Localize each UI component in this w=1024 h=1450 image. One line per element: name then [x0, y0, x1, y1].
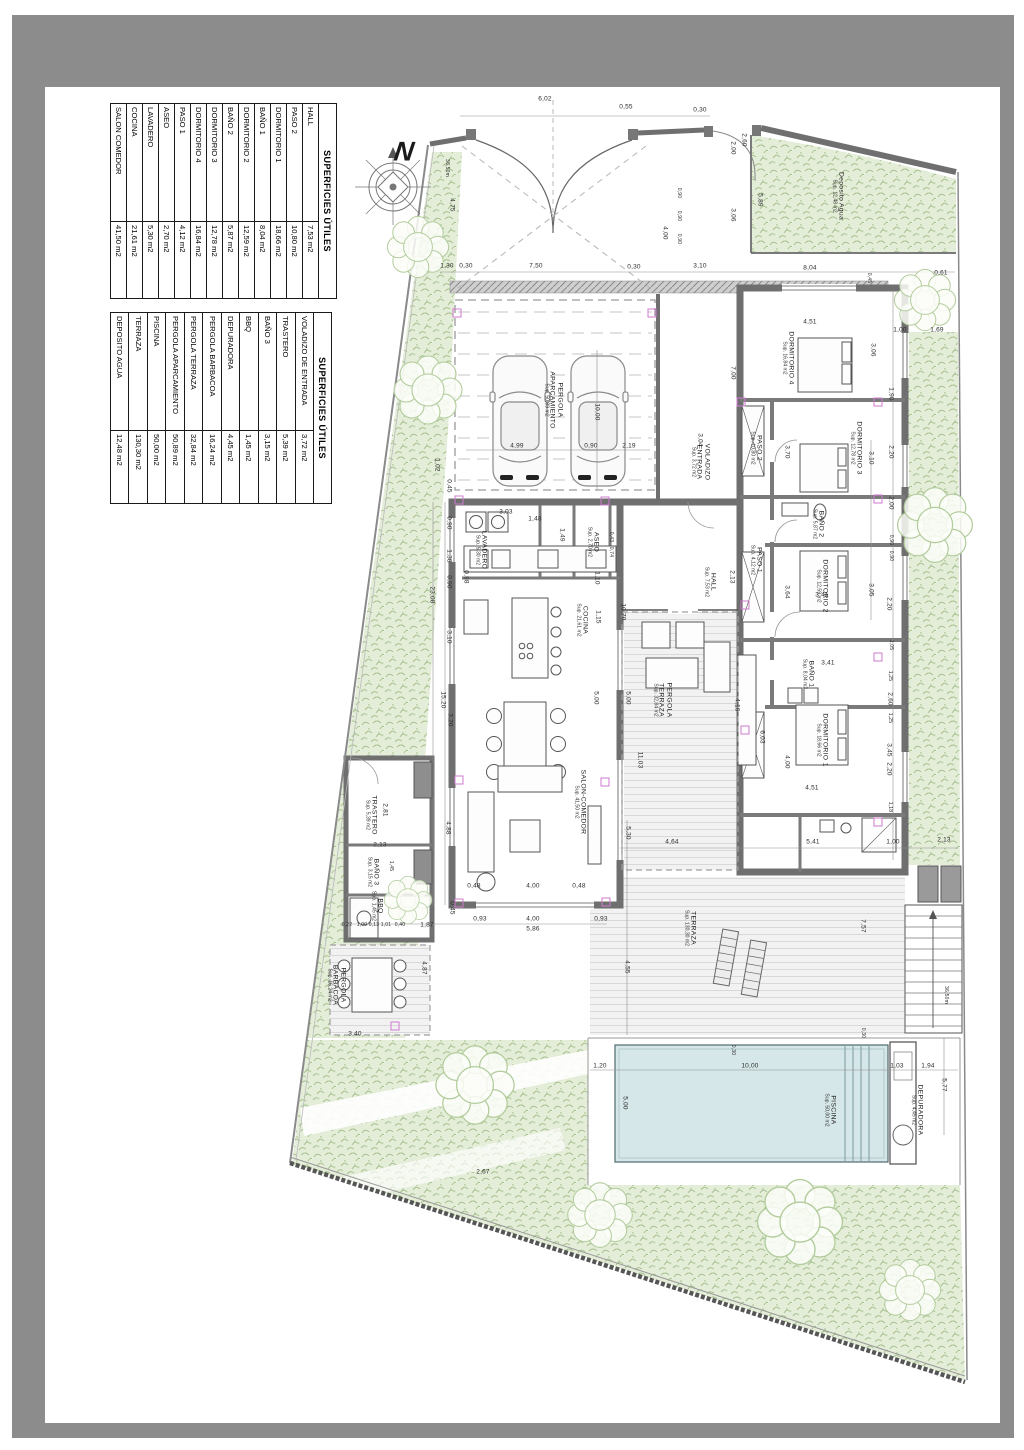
table-row: DEPURADORA4,45 m2 — [221, 313, 239, 503]
entrance-gates — [458, 125, 761, 288]
room-name-cell: LAVADERO — [143, 104, 158, 222]
room-area-cell: 4,45 m2 — [222, 431, 239, 503]
table-row: PASO 210,80 m2 — [286, 104, 302, 298]
room-name-cell: BBQ — [240, 313, 257, 431]
room-name-cell: DORMITORIO 1 — [271, 104, 286, 222]
exterior-stairs — [905, 905, 962, 1033]
room-name-cell: DORMITORIO 4 — [191, 104, 206, 222]
table-row: BBQ1,45 m2 — [239, 313, 257, 503]
surface-table-exterior: SUPERFICIES ÚTILES VOLADIZO DE ENTRADA3,… — [110, 312, 332, 504]
table-body: HALL7,53 m2PASO 210,80 m2DORMITORIO 118,… — [111, 104, 318, 298]
table-row: DEPOSITO AGUA12,48 m2 — [111, 313, 128, 503]
room-name-cell: BAÑO 3 — [259, 313, 276, 431]
room-area-cell: 32,84 m2 — [185, 431, 202, 503]
table-row: DORMITORIO 312,78 m2 — [206, 104, 222, 298]
table-row: BAÑO 33,15 m2 — [258, 313, 276, 503]
room-area-cell: 3,15 m2 — [259, 431, 276, 503]
room-name-cell: BAÑO 2 — [223, 104, 238, 222]
table-row: SALON COMEDOR41,50 m2 — [111, 104, 126, 298]
room-name-cell: PERGOLA BARBACOA — [203, 313, 220, 431]
car-icon — [568, 356, 628, 486]
table-row: DORMITORIO 416,84 m2 — [190, 104, 206, 298]
room-name-cell: DEPOSITO AGUA — [111, 313, 128, 431]
floor-plan-page: { "frame": {"outer_color": "#8c8c8c", "p… — [0, 0, 1024, 1450]
room-name-cell: TERRAZA — [129, 313, 146, 431]
table-row: LAVADERO5,30 m2 — [142, 104, 158, 298]
table-row: PASO 14,12 m2 — [174, 104, 190, 298]
table-row: HALL7,53 m2 — [302, 104, 318, 298]
room-area-cell: 41,50 m2 — [111, 222, 126, 298]
table-title: SUPERFICIES ÚTILES — [313, 313, 331, 503]
table-row: DORMITORIO 212,59 m2 — [238, 104, 254, 298]
room-name-cell: DORMITORIO 3 — [207, 104, 222, 222]
room-area-cell: 3,72 m2 — [296, 431, 313, 503]
room-area-cell: 10,80 m2 — [287, 222, 302, 298]
compass-icon — [355, 147, 431, 225]
room-area-cell: 130,30 m2 — [129, 431, 146, 503]
room-area-cell: 12,78 m2 — [207, 222, 222, 298]
room-name-cell: COCINA — [127, 104, 142, 222]
table-row: VOLADIZO DE ENTRADA3,72 m2 — [295, 313, 313, 503]
surface-table-interior: SUPERFICIES ÚTILES HALL7,53 m2PASO 210,8… — [110, 103, 337, 299]
table-row: BAÑO 25,87 m2 — [222, 104, 238, 298]
table-title: SUPERFICIES ÚTILES — [318, 104, 336, 298]
room-name-cell: PASO 1 — [175, 104, 190, 222]
room-name-cell: TRASTERO — [277, 313, 294, 431]
room-area-cell: 5,39 m2 — [277, 431, 294, 503]
table-body: VOLADIZO DE ENTRADA3,72 m2TRASTERO5,39 m… — [111, 313, 313, 503]
room-area-cell: 2,70 m2 — [159, 222, 174, 298]
swimming-pool — [588, 1038, 960, 1185]
room-name-cell: SALON COMEDOR — [111, 104, 126, 222]
room-name-cell: PERGOLA APARCAMIENTO — [166, 313, 183, 431]
table-row: BAÑO 18,04 m2 — [254, 104, 270, 298]
car-icon — [490, 356, 550, 486]
room-area-cell: 7,53 m2 — [303, 222, 318, 298]
room-name-cell: PASO 2 — [287, 104, 302, 222]
room-area-cell: 50,00 m2 — [148, 431, 165, 503]
room-area-cell: 12,48 m2 — [111, 431, 128, 503]
room-area-cell: 5,30 m2 — [143, 222, 158, 298]
room-name-cell: DORMITORIO 2 — [239, 104, 254, 222]
room-area-cell: 16,84 m2 — [191, 222, 206, 298]
room-area-cell: 8,04 m2 — [255, 222, 270, 298]
table-row: PERGOLA BARBACOA16,24 m2 — [202, 313, 220, 503]
table-row: ASEO2,70 m2 — [158, 104, 174, 298]
room-area-cell: 12,59 m2 — [239, 222, 254, 298]
room-area-cell: 1,45 m2 — [240, 431, 257, 503]
room-area-cell: 50,89 m2 — [166, 431, 183, 503]
table-row: TERRAZA130,30 m2 — [128, 313, 146, 503]
room-name-cell: HALL — [303, 104, 318, 222]
table-row: COCINA21,61 m2 — [126, 104, 142, 298]
room-area-cell: 4,12 m2 — [175, 222, 190, 298]
room-name-cell: ASEO — [159, 104, 174, 222]
table-row: TRASTERO5,39 m2 — [276, 313, 294, 503]
room-name-cell: VOLADIZO DE ENTRADA — [296, 313, 313, 431]
table-row: DORMITORIO 118,66 m2 — [270, 104, 286, 298]
room-area-cell: 18,66 m2 — [271, 222, 286, 298]
room-area-cell: 5,87 m2 — [223, 222, 238, 298]
room-name-cell: PERGOLA TERRAZA — [185, 313, 202, 431]
table-row: PERGOLA APARCAMIENTO50,89 m2 — [165, 313, 183, 503]
room-name-cell: DEPURADORA — [222, 313, 239, 431]
room-name-cell: BAÑO 1 — [255, 104, 270, 222]
room-name-cell: PISCINA — [148, 313, 165, 431]
room-area-cell: 16,24 m2 — [203, 431, 220, 503]
table-row: PISCINA50,00 m2 — [147, 313, 165, 503]
table-row: PERGOLA TERRAZA32,84 m2 — [184, 313, 202, 503]
room-area-cell: 21,61 m2 — [127, 222, 142, 298]
